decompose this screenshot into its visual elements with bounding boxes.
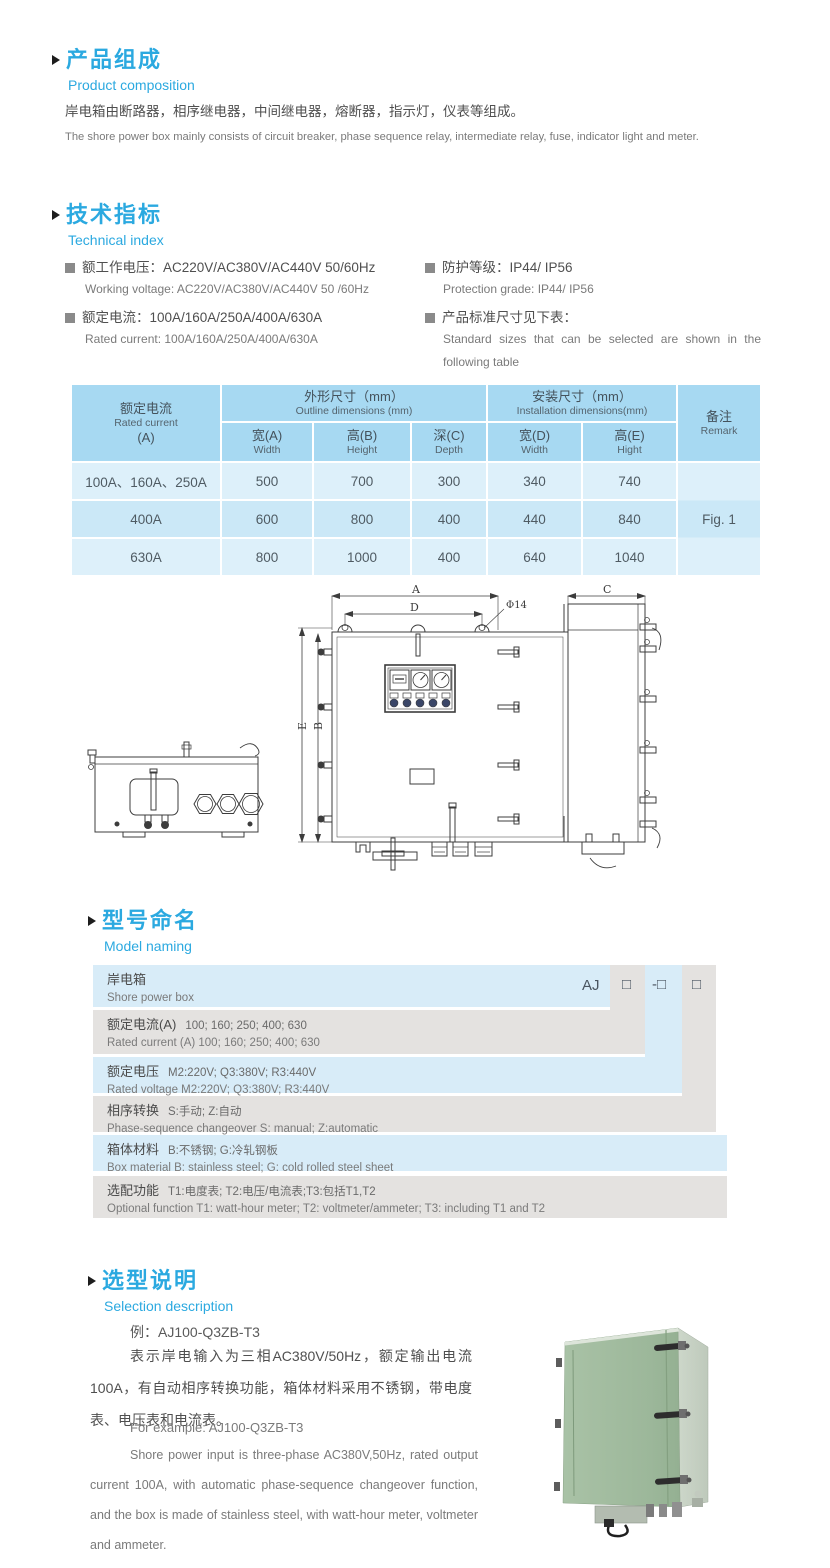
shore-power-box-photo	[554, 1328, 708, 1536]
table-row: 400A 600 800 400 440 840	[71, 500, 761, 538]
product-composition-text-en: The shore power box mainly consists of c…	[65, 128, 699, 146]
model-naming-diagram: 岸电箱 Shore power box 额定电流(A)100; 160; 250…	[0, 965, 830, 1221]
section-title-selection: 选型说明	[102, 1269, 198, 1293]
table-row: 100A、160A、250A 500 700 300 340 740 Fig. …	[71, 462, 761, 500]
section-subtitle-model-naming: Model naming	[104, 938, 192, 954]
section-marker-icon	[52, 210, 60, 220]
section-marker-icon	[88, 916, 96, 926]
spec-working-voltage-en: Working voltage: AC220V/AC380V/AC440V 50…	[85, 282, 369, 296]
square-bullet-icon	[425, 263, 435, 273]
remark-figure-ref: Fig. 1	[677, 462, 761, 576]
dim-label-a: A	[411, 583, 421, 596]
col-header-width-d: 宽(D)Width	[487, 422, 582, 462]
table-row: 630A 800 1000 400 640 1040	[71, 538, 761, 576]
col-group-outline-dimensions: 外形尺寸（mm） Outline dimensions (mm)	[221, 384, 487, 422]
section-subtitle-selection: Selection description	[104, 1298, 233, 1314]
spec-rated-current-cn: 额定电流：100A/160A/250A/400A/630A	[65, 306, 322, 326]
section-title-model-naming: 型号命名	[102, 909, 198, 933]
spec-working-voltage-cn: 额工作电压：AC220V/AC380V/AC440V 50/60Hz	[65, 256, 375, 276]
col-header-depth-c: 深(C)Depth	[411, 422, 487, 462]
dim-label-b: B	[312, 722, 325, 730]
section-marker-icon	[52, 55, 60, 65]
naming-row-rated-voltage: 额定电压M2:220V; Q3:380V; R3:440V Rated volt…	[93, 1057, 682, 1093]
model-code-prefix: AJ	[582, 977, 600, 994]
outline-drawing-figure: A D Φ14 E B C	[70, 582, 760, 882]
dim-label-c: C	[603, 583, 611, 596]
square-bullet-icon	[65, 263, 75, 273]
spec-standard-sizes-en: Standard sizes that can be selected are …	[443, 328, 761, 374]
spec-standard-sizes-cn: 产品标准尺寸见下表：	[425, 306, 577, 326]
selection-example-en: For example: AJ100-Q3ZB-T3	[130, 1420, 303, 1435]
naming-row-phase-sequence: 相序转换S:手动; Z:自动 Phase-sequence changeover…	[93, 1096, 716, 1132]
dim-label-d: D	[410, 601, 419, 614]
selection-body-en: Shore power input is three-phase AC380V,…	[90, 1440, 478, 1560]
naming-row-rated-current: 额定电流(A)100; 160; 250; 400; 630 Rated cur…	[93, 1010, 645, 1054]
section-subtitle-product-composition: Product composition	[68, 77, 195, 93]
col-header-height-b: 高(B)Height	[313, 422, 411, 462]
model-code-slot-2: -□	[652, 976, 666, 993]
meter-panel-drawing	[385, 665, 455, 712]
model-code-slot-1: □	[622, 976, 631, 993]
naming-row-optional-function: 选配功能T1:电度表; T2:电压/电流表;T3:包括T1,T2 Optiona…	[93, 1176, 727, 1218]
front-view-drawing	[298, 596, 568, 870]
square-bullet-icon	[425, 313, 435, 323]
top-view-drawing	[88, 742, 263, 837]
spec-protection-grade-en: Protection grade: IP44/ IP56	[443, 282, 594, 296]
section-subtitle-technical-index: Technical index	[68, 232, 164, 248]
spec-protection-grade-cn: 防护等级：IP44/ IP56	[425, 256, 573, 276]
catalog-page: 产品组成 Product composition 岸电箱由断路器，相序继电器，中…	[0, 0, 830, 1568]
selection-example-cn: 例：AJ100-Q3ZB-T3	[130, 1322, 260, 1342]
col-header-width-a: 宽(A)Width	[221, 422, 313, 462]
col-header-remark: 备注 Remark	[677, 384, 761, 462]
naming-row-box-material: 箱体材料B:不锈钢; G:冷轧钢板 Box material B: stainl…	[93, 1135, 727, 1171]
col-header-hight-e: 高(E)Hight	[582, 422, 677, 462]
product-composition-text-cn: 岸电箱由断路器，相序继电器，中间继电器，熔断器，指示灯，仪表等组成。	[65, 102, 785, 122]
model-code-slot-3: □	[692, 976, 701, 993]
dim-label-hole: Φ14	[506, 600, 527, 611]
square-bullet-icon	[65, 313, 75, 323]
dim-label-e: E	[296, 722, 309, 730]
section-title-product-composition: 产品组成	[66, 48, 162, 72]
product-photo	[540, 1300, 830, 1568]
side-view-drawing	[564, 596, 661, 868]
section-marker-icon	[88, 1276, 96, 1286]
dimensions-table: 额定电流 Rated current (A) 外形尺寸（mm） Outline …	[70, 383, 762, 577]
spec-rated-current-en: Rated current: 100A/160A/250A/400A/630A	[85, 332, 318, 346]
section-title-technical-index: 技术指标	[66, 203, 162, 227]
col-header-rated-current: 额定电流 Rated current (A)	[71, 384, 221, 462]
naming-row-shore-power-box: 岸电箱 Shore power box	[93, 965, 610, 1007]
col-group-installation-dimensions: 安装尺寸（mm） Installation dimensions(mm)	[487, 384, 677, 422]
